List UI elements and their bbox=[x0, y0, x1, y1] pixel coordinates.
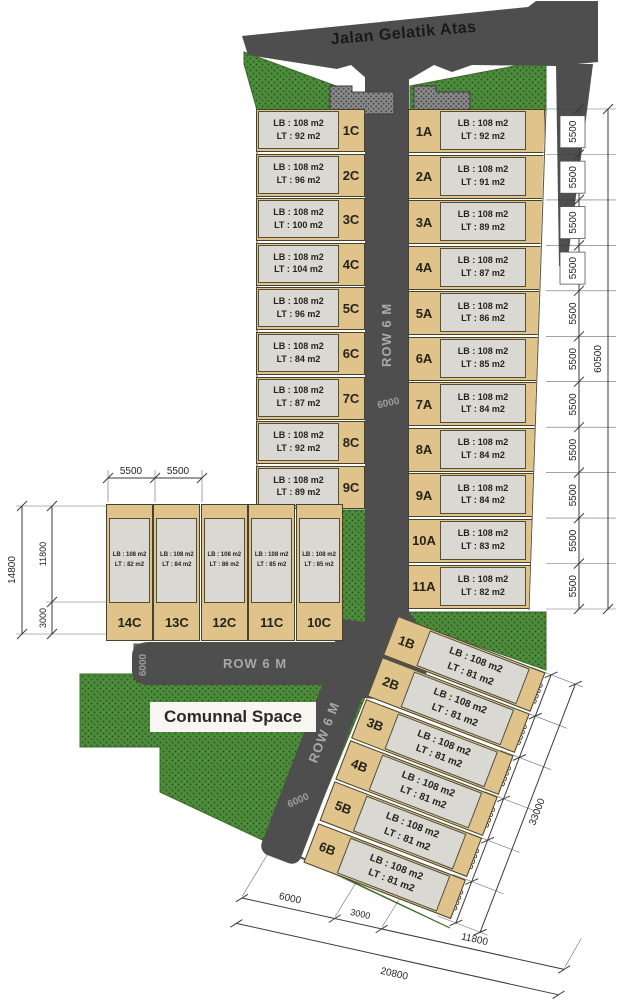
lot-lt-text: LT : 92 m2 bbox=[277, 131, 321, 143]
lot-lt-text: LT : 89 m2 bbox=[461, 222, 505, 234]
lot-house: LB : 108 m2 LT : 96 m2 bbox=[258, 156, 339, 194]
lot-house: LB : 108 m2 LT : 84 m2 bbox=[156, 518, 197, 603]
lot-lb-text: LB : 108 m2 bbox=[302, 551, 336, 560]
lot-row-c: LB : 108 m2 LT : 96 m2 5C bbox=[256, 287, 365, 330]
lot-back-c: LB : 108 m2 LT : 86 m2 12C bbox=[201, 504, 248, 641]
lot-back-c: LB : 108 m2 LT : 82 m2 14C bbox=[106, 504, 153, 641]
lot-house: LB : 108 m2 LT : 82 m2 bbox=[440, 567, 526, 606]
lot-number: 1C bbox=[338, 110, 364, 151]
lot-back-c: LB : 108 m2 LT : 84 m2 13C bbox=[153, 504, 200, 641]
lot-lb-text: LB : 108 m2 bbox=[273, 385, 324, 397]
lot-number: 4C bbox=[338, 244, 364, 285]
lot-row-a: 3A LB : 108 m2 LT : 89 m2 bbox=[408, 200, 545, 244]
lot-lt-text: LT : 82 m2 bbox=[461, 587, 505, 599]
lot-row-a: 4A LB : 108 m2 LT : 87 m2 bbox=[408, 246, 545, 290]
lot-lb-text: LB : 108 m2 bbox=[273, 118, 324, 130]
lot-row-c: LB : 108 m2 LT : 92 m2 1C bbox=[256, 109, 365, 152]
lot-row-a: 1A LB : 108 m2 LT : 92 m2 bbox=[408, 109, 545, 153]
lot-number: 5C bbox=[338, 288, 364, 329]
lot-house: LB : 108 m2 LT : 87 m2 bbox=[440, 248, 526, 287]
lot-lt-text: LT : 86 m2 bbox=[210, 561, 239, 570]
west-road-row-label: ROW 6 M bbox=[223, 656, 287, 671]
lot-lb-text: LB : 108 m2 bbox=[458, 528, 509, 540]
svg-text:5500: 5500 bbox=[568, 393, 579, 416]
lot-number: 14C bbox=[107, 605, 152, 639]
lot-lt-text: LT : 82 m2 bbox=[115, 561, 144, 570]
svg-text:5500: 5500 bbox=[568, 166, 579, 189]
lot-lt-text: LT : 91 m2 bbox=[461, 177, 505, 189]
lot-house: LB : 108 m2 LT : 104 m2 bbox=[258, 245, 339, 283]
lot-lt-text: LT : 86 m2 bbox=[461, 313, 505, 325]
lot-house: LB : 108 m2 LT : 96 m2 bbox=[258, 289, 339, 327]
lot-house: LB : 108 m2 LT : 92 m2 bbox=[440, 111, 526, 150]
lot-number: 9A bbox=[409, 474, 439, 516]
lot-house: LB : 108 m2 LT : 100 m2 bbox=[258, 200, 339, 238]
lot-lt-text: LT : 84 m2 bbox=[277, 354, 321, 366]
lot-lb-text: LB : 108 m2 bbox=[458, 483, 509, 495]
svg-text:5500: 5500 bbox=[568, 438, 579, 461]
lot-lt-text: LT : 84 m2 bbox=[461, 495, 505, 507]
lot-lb-text: LB : 108 m2 bbox=[273, 341, 324, 353]
center-road-row-label: ROW 6 M bbox=[379, 303, 394, 367]
dim-left-labels: 11800 3000 14800 bbox=[7, 542, 48, 628]
lot-number: 2A bbox=[409, 156, 439, 198]
svg-text:5500: 5500 bbox=[568, 211, 579, 234]
svg-text:3000: 3000 bbox=[38, 608, 48, 628]
lot-house: LB : 108 m2 LT : 83 m2 bbox=[440, 521, 526, 560]
svg-text:5500: 5500 bbox=[568, 575, 579, 598]
lot-house: LB : 108 m2 LT : 89 m2 bbox=[440, 202, 526, 241]
lot-lt-text: LT : 96 m2 bbox=[277, 309, 321, 321]
lot-house: LB : 108 m2 LT : 84 m2 bbox=[440, 430, 526, 469]
lot-house: LB : 108 m2 LT : 84 m2 bbox=[440, 384, 526, 423]
lot-lb-text: LB : 108 m2 bbox=[458, 255, 509, 267]
lot-number: 2C bbox=[338, 155, 364, 196]
lot-number: 10C bbox=[297, 605, 342, 639]
lot-number: 4A bbox=[409, 247, 439, 289]
lot-lb-text: LB : 108 m2 bbox=[458, 301, 509, 313]
lot-lb-text: LB : 108 m2 bbox=[273, 430, 324, 442]
communal-space-label: Comunnal Space bbox=[150, 702, 316, 732]
svg-text:5500: 5500 bbox=[568, 120, 579, 143]
lot-number: 11C bbox=[249, 605, 294, 639]
lot-lt-text: LT : 92 m2 bbox=[461, 131, 505, 143]
lot-house: LB : 108 m2 LT : 87 m2 bbox=[258, 379, 339, 417]
lot-number: 12C bbox=[202, 605, 247, 639]
lot-number: 9C bbox=[338, 467, 364, 508]
lot-number: 1A bbox=[409, 110, 439, 152]
lot-lb-text: LB : 108 m2 bbox=[113, 551, 147, 560]
dim-bottom-total: 20800 bbox=[379, 966, 409, 983]
lot-lt-text: LT : 104 m2 bbox=[274, 264, 323, 276]
lot-number: 3A bbox=[409, 201, 439, 243]
lot-house: LB : 108 m2 LT : 86 m2 bbox=[440, 293, 526, 332]
lot-row-a: 8A LB : 108 m2 LT : 84 m2 bbox=[408, 428, 545, 472]
lot-house: LB : 108 m2 LT : 92 m2 bbox=[258, 111, 339, 149]
lot-lt-text: LT : 85 m2 bbox=[461, 359, 505, 371]
lot-back-c: LB : 108 m2 LT : 85 m2 10C bbox=[296, 504, 343, 641]
lot-number: 6C bbox=[338, 333, 364, 374]
lot-lt-text: LT : 84 m2 bbox=[461, 404, 505, 416]
lot-lt-text: LT : 84 m2 bbox=[461, 450, 505, 462]
lot-row-a: 10A LB : 108 m2 LT : 83 m2 bbox=[408, 519, 545, 563]
lot-column-c: LB : 108 m2 LT : 92 m2 1C LB : 108 m2 LT… bbox=[256, 109, 366, 512]
lot-lb-text: LB : 108 m2 bbox=[273, 475, 324, 487]
lot-lt-text: LT : 83 m2 bbox=[461, 541, 505, 553]
lot-lb-text: LB : 108 m2 bbox=[458, 164, 509, 176]
lot-row-c: LB : 108 m2 LT : 87 m2 7C bbox=[256, 377, 365, 420]
lot-row-c: LB : 108 m2 LT : 96 m2 2C bbox=[256, 154, 365, 197]
lot-lb-text: LB : 108 m2 bbox=[273, 252, 324, 264]
lot-number: 13C bbox=[154, 605, 199, 639]
lot-lb-text: LB : 108 m2 bbox=[458, 392, 509, 404]
lot-column-a: 1A LB : 108 m2 LT : 92 m2 2A LB : 108 m2… bbox=[408, 109, 545, 612]
lot-number: 7C bbox=[338, 378, 364, 419]
svg-text:5500: 5500 bbox=[568, 302, 579, 325]
lot-row-c: LB : 108 m2 LT : 89 m2 9C bbox=[256, 466, 365, 509]
lot-house: LB : 108 m2 LT : 89 m2 bbox=[258, 468, 339, 506]
lot-lt-text: LT : 85 m2 bbox=[257, 561, 286, 570]
lot-row-c: LB : 108 m2 LT : 104 m2 4C bbox=[256, 243, 365, 286]
svg-text:5500: 5500 bbox=[120, 466, 143, 477]
lot-house: LB : 108 m2 LT : 92 m2 bbox=[258, 423, 339, 461]
lot-lt-text: LT : 87 m2 bbox=[461, 268, 505, 280]
lot-row-a: 5A LB : 108 m2 LT : 86 m2 bbox=[408, 291, 545, 335]
lot-number: 11A bbox=[409, 566, 439, 608]
svg-text:5500: 5500 bbox=[568, 529, 579, 552]
lot-row-c: LB : 108 m2 LT : 84 m2 6C bbox=[256, 332, 365, 375]
lot-house: LB : 108 m2 LT : 84 m2 bbox=[258, 334, 339, 372]
lot-number: 3C bbox=[338, 199, 364, 240]
lot-house: LB : 108 m2 LT : 82 m2 bbox=[109, 518, 150, 603]
svg-text:6000: 6000 bbox=[278, 891, 303, 907]
lot-lb-text: LB : 108 m2 bbox=[458, 118, 509, 130]
lot-house: LB : 108 m2 LT : 91 m2 bbox=[440, 157, 526, 196]
lot-block-c-back: LB : 108 m2 LT : 82 m2 14C LB : 108 m2 L… bbox=[106, 504, 344, 642]
lot-house: LB : 108 m2 LT : 85 m2 bbox=[440, 339, 526, 378]
svg-text:5500: 5500 bbox=[568, 257, 579, 280]
lot-house: LB : 108 m2 LT : 86 m2 bbox=[204, 518, 245, 603]
lot-row-c: LB : 108 m2 LT : 92 m2 8C bbox=[256, 421, 365, 464]
lot-row-a: 7A LB : 108 m2 LT : 84 m2 bbox=[408, 382, 545, 426]
lot-lt-text: LT : 87 m2 bbox=[277, 398, 321, 410]
lot-row-c: LB : 108 m2 LT : 100 m2 3C bbox=[256, 198, 365, 241]
lot-lt-text: LT : 100 m2 bbox=[274, 220, 323, 232]
lot-row-a: 6A LB : 108 m2 LT : 85 m2 bbox=[408, 337, 545, 381]
svg-text:5500: 5500 bbox=[568, 484, 579, 507]
lot-number: 6A bbox=[409, 338, 439, 380]
lot-row-a: 9A LB : 108 m2 LT : 84 m2 bbox=[408, 473, 545, 517]
lot-lb-text: LB : 108 m2 bbox=[458, 574, 509, 586]
lot-row-a: 2A LB : 108 m2 LT : 91 m2 bbox=[408, 155, 545, 199]
dim-left-total: 14800 bbox=[7, 556, 18, 584]
lot-house: LB : 108 m2 LT : 85 m2 bbox=[299, 518, 340, 603]
lot-lt-text: LT : 92 m2 bbox=[277, 443, 321, 455]
svg-text:5500: 5500 bbox=[568, 347, 579, 370]
dim-backrow-top bbox=[103, 470, 207, 502]
lot-lb-text: LB : 108 m2 bbox=[458, 209, 509, 221]
lot-house: LB : 108 m2 LT : 84 m2 bbox=[440, 475, 526, 514]
siteplan-image: Jalan Gelatik Atas ROW 6 M 6000 ROW 6 M … bbox=[0, 0, 638, 1000]
lot-lt-text: LT : 84 m2 bbox=[162, 561, 191, 570]
lot-lb-text: LB : 108 m2 bbox=[273, 162, 324, 174]
lot-lt-text: LT : 96 m2 bbox=[277, 175, 321, 187]
svg-text:11800: 11800 bbox=[38, 542, 48, 566]
lot-lb-text: LB : 108 m2 bbox=[458, 437, 509, 449]
lot-number: 8A bbox=[409, 429, 439, 471]
lot-lb-text: LB : 108 m2 bbox=[458, 346, 509, 358]
west-road-width-label: 6000 bbox=[138, 653, 149, 676]
lot-house: LB : 108 m2 LT : 85 m2 bbox=[251, 518, 292, 603]
lot-number: 10A bbox=[409, 520, 439, 562]
lot-lt-text: LT : 89 m2 bbox=[277, 487, 321, 499]
svg-text:5500: 5500 bbox=[167, 466, 190, 477]
lot-back-c: LB : 108 m2 LT : 85 m2 11C bbox=[248, 504, 295, 641]
lot-number: 5A bbox=[409, 292, 439, 334]
dim-right-total: 60500 bbox=[593, 345, 604, 373]
lot-lb-text: LB : 108 m2 bbox=[160, 551, 194, 560]
lot-lb-text: LB : 108 m2 bbox=[273, 207, 324, 219]
lot-lb-text: LB : 108 m2 bbox=[273, 296, 324, 308]
lot-lt-text: LT : 85 m2 bbox=[304, 561, 333, 570]
lot-lb-text: LB : 108 m2 bbox=[207, 551, 241, 560]
lot-number: 7A bbox=[409, 383, 439, 425]
lot-row-a: 11A LB : 108 m2 LT : 82 m2 bbox=[408, 565, 545, 609]
svg-text:3000: 3000 bbox=[349, 907, 371, 921]
lot-number: 8C bbox=[338, 422, 364, 463]
lot-lb-text: LB : 108 m2 bbox=[255, 551, 289, 560]
